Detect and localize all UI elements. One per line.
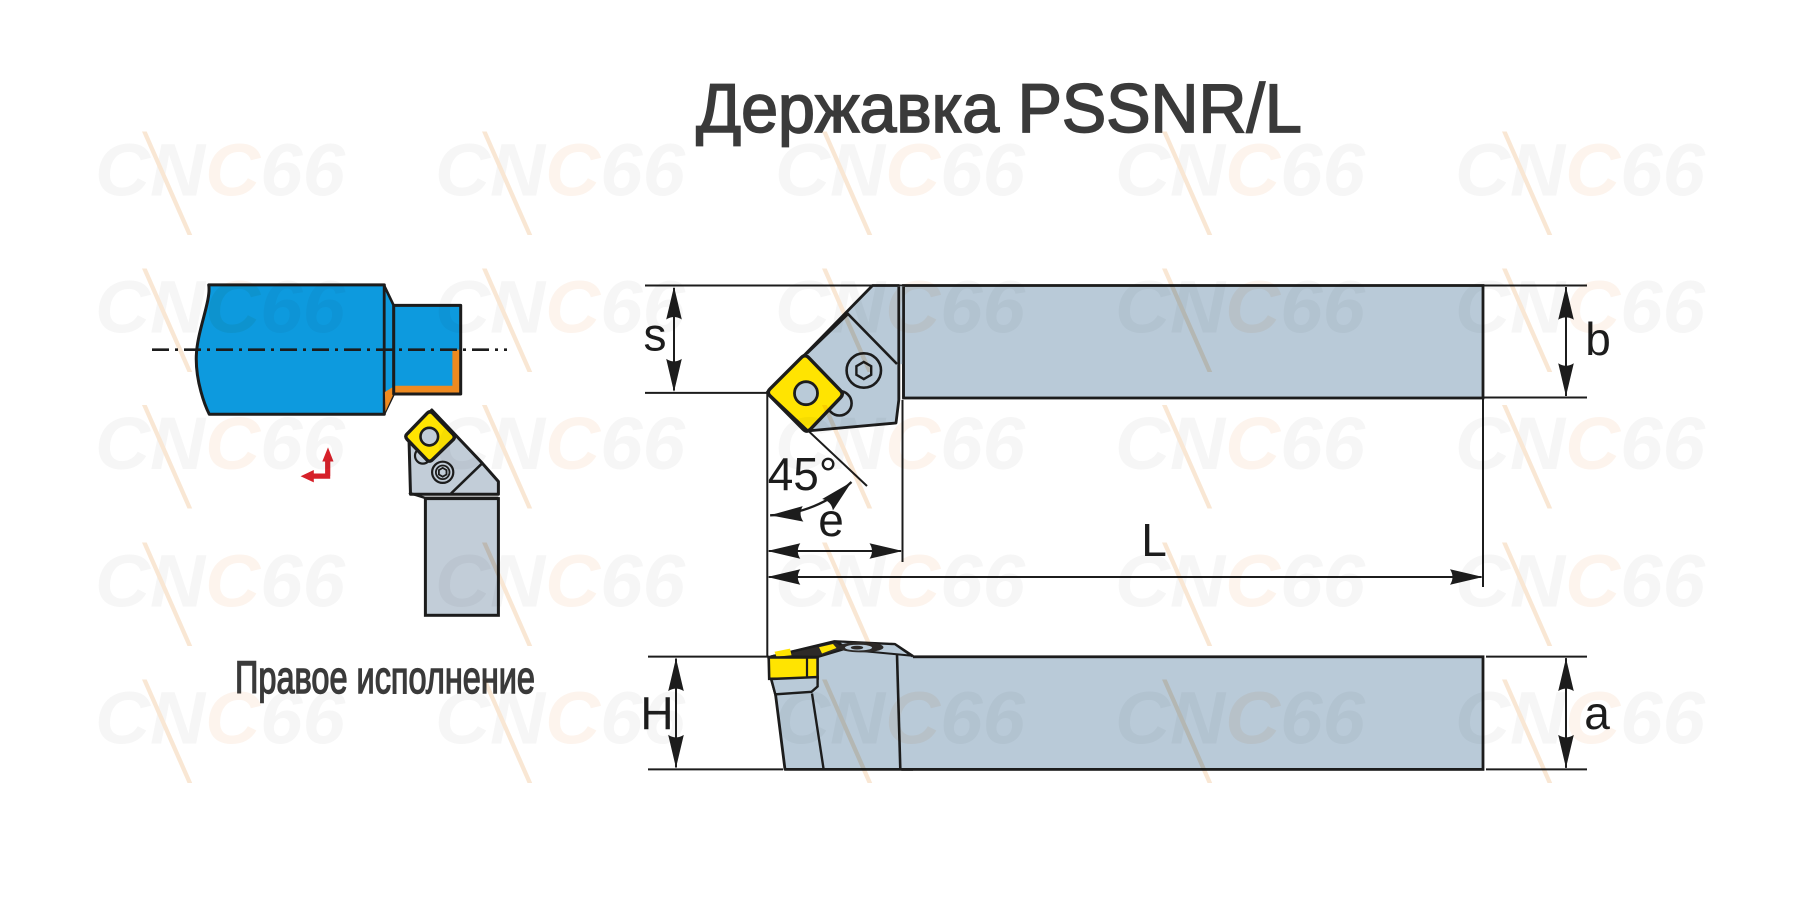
svg-text:e: e [818,494,844,546]
